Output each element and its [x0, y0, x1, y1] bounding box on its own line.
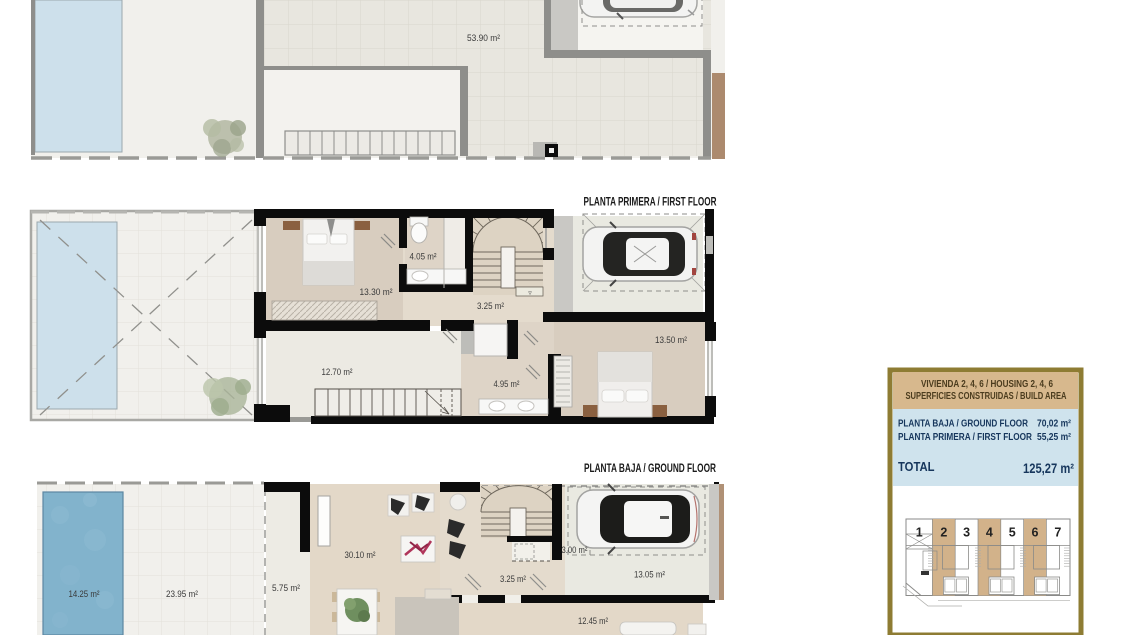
svg-text:PLANTA BAJA / GROUND FLOOR: PLANTA BAJA / GROUND FLOOR	[584, 461, 716, 475]
svg-text:125,27 m²: 125,27 m²	[1023, 461, 1074, 476]
svg-text:30.10 m²: 30.10 m²	[345, 550, 376, 560]
svg-text:13.50 m²: 13.50 m²	[655, 335, 687, 345]
svg-text:5: 5	[1009, 526, 1016, 540]
svg-text:SUPERFICIES CONSTRUIDAS / BUIL: SUPERFICIES CONSTRUIDAS / BUILD AREA	[906, 391, 1067, 402]
svg-text:1: 1	[916, 526, 923, 540]
svg-text:PLANTA PRIMERA / FIRST FLOOR: PLANTA PRIMERA / FIRST FLOOR	[584, 195, 717, 209]
svg-text:12.70 m²: 12.70 m²	[322, 367, 353, 377]
svg-text:▿: ▿	[528, 290, 532, 297]
svg-text:VIVIENDA 2, 4, 6 / HOUSING 2,: VIVIENDA 2, 4, 6 / HOUSING 2, 4, 6	[921, 379, 1053, 390]
svg-text:2: 2	[940, 526, 947, 540]
svg-text:6: 6	[1032, 526, 1039, 540]
svg-text:7: 7	[1054, 526, 1061, 540]
svg-text:55,25 m²: 55,25 m²	[1037, 432, 1071, 443]
svg-text:3.25 m²: 3.25 m²	[500, 574, 526, 584]
svg-text:4.95 m²: 4.95 m²	[494, 379, 520, 389]
svg-text:12.45 m²: 12.45 m²	[578, 616, 608, 626]
svg-text:TOTAL: TOTAL	[898, 459, 935, 474]
svg-text:4: 4	[986, 526, 993, 540]
svg-text:14.25 m²: 14.25 m²	[69, 589, 100, 599]
svg-text:53.90 m²: 53.90 m²	[467, 33, 500, 43]
svg-text:3.00 m²: 3.00 m²	[562, 545, 588, 555]
svg-text:PLANTA BAJA / GROUND FLOOR: PLANTA BAJA / GROUND FLOOR	[898, 419, 1028, 430]
svg-text:13.30 m²: 13.30 m²	[360, 287, 393, 297]
svg-text:70,02 m²: 70,02 m²	[1037, 419, 1071, 430]
svg-text:3.25 m²: 3.25 m²	[477, 301, 504, 311]
svg-text:PLANTA PRIMERA / FIRST FLOOR: PLANTA PRIMERA / FIRST FLOOR	[898, 432, 1032, 443]
svg-text:3: 3	[963, 526, 970, 540]
svg-text:23.95 m²: 23.95 m²	[166, 589, 198, 599]
svg-text:5.75 m²: 5.75 m²	[272, 583, 300, 593]
svg-text:13.05 m²: 13.05 m²	[634, 570, 665, 580]
svg-text:4.05 m²: 4.05 m²	[410, 252, 437, 262]
